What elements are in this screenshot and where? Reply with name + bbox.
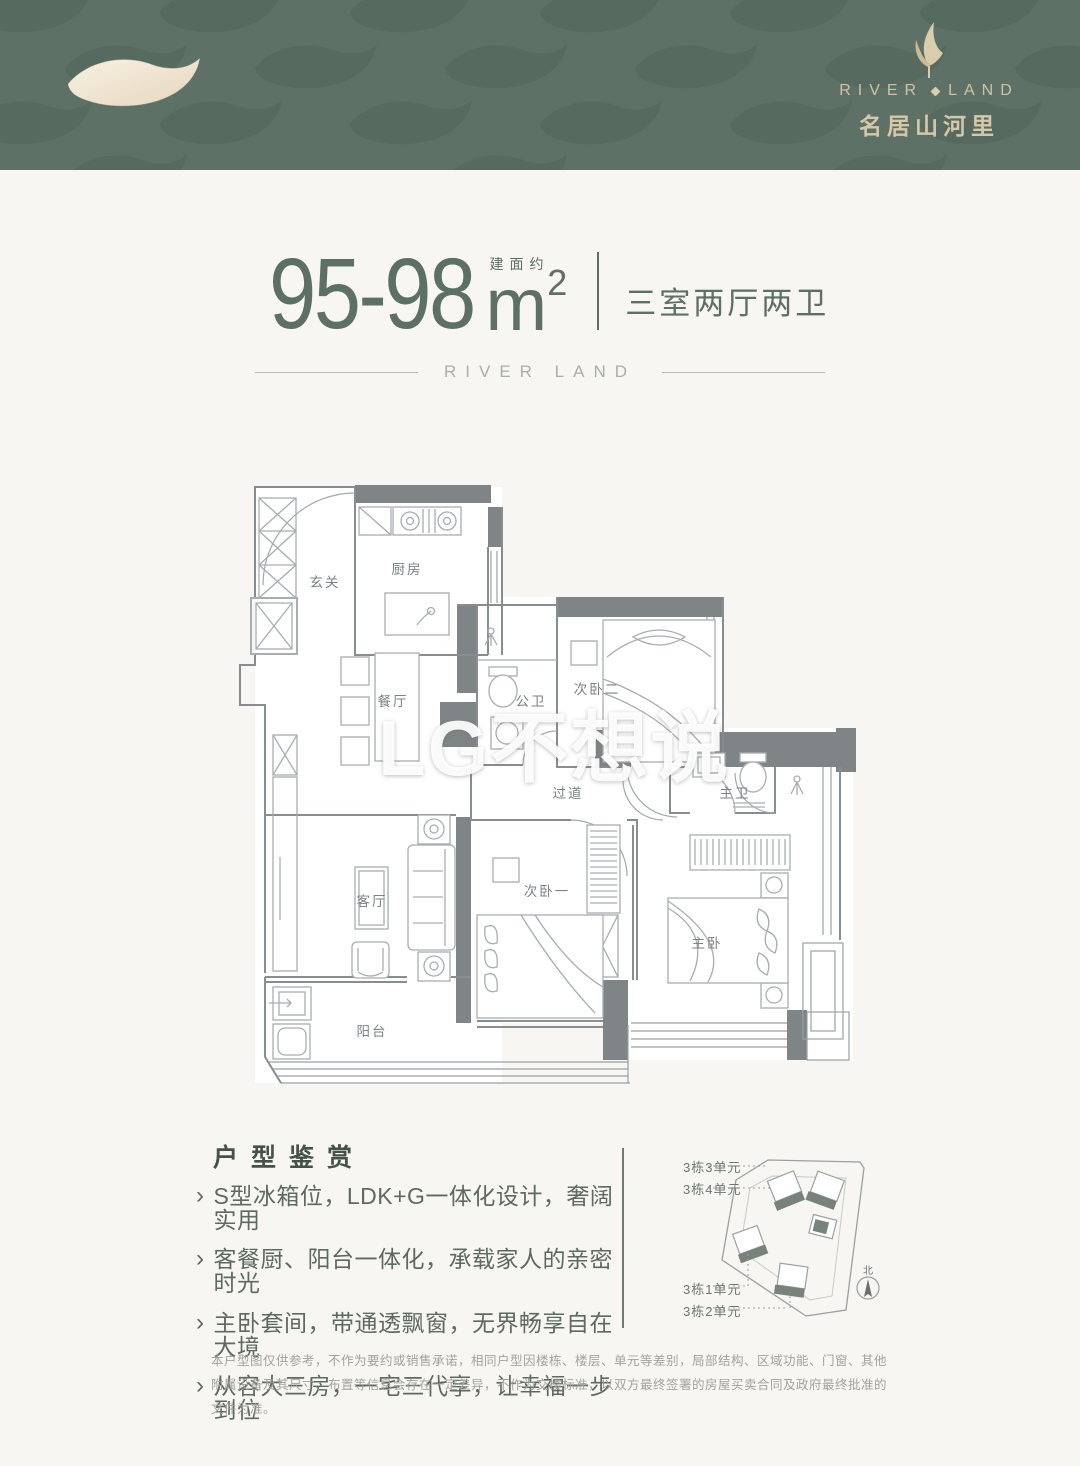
disclaimer-text: 本户型图仅供参考，不作为要约或销售承诺，相同户型因楼栋、楼层、单元等差别，局部结… xyxy=(211,1350,893,1421)
feature-item: › S型冰箱位，LDK+G一体化设计，奢阔实用 xyxy=(196,1184,636,1232)
room-label-bedroom1: 次卧一 xyxy=(524,884,571,899)
compass-north-label: 北 xyxy=(863,1265,873,1277)
siteplan-buildings xyxy=(731,1170,845,1297)
room-label-master: 主卧 xyxy=(692,936,723,951)
chevron-bullet-icon: › xyxy=(196,1311,205,1335)
brand-divider-row: RIVER LAND xyxy=(0,362,1080,382)
feature-text: S型冰箱位，LDK+G一体化设计，奢阔实用 xyxy=(214,1184,637,1232)
riverland-leaf-icon xyxy=(906,14,952,80)
brand-en-land: LAND xyxy=(948,82,1019,100)
area-unit-sup: 2 xyxy=(547,267,567,299)
chevron-bullet-icon: › xyxy=(196,1247,205,1271)
layout-type: 三室两厅两卫 xyxy=(625,278,829,323)
brand-cn: 名居山河里 xyxy=(859,107,999,141)
room-label-kitchen: 厨房 xyxy=(392,562,423,577)
room-label-balcony: 阳台 xyxy=(357,1024,388,1039)
features-divider-line xyxy=(622,1148,624,1328)
siteplan-label-unit1: 3栋1单元 xyxy=(683,1279,741,1298)
siteplan-label-unit3: 3栋3单元 xyxy=(683,1157,741,1176)
area-unit: m xyxy=(486,275,548,336)
feature-item: › 客餐厨、阳台一体化，承载家人的亲密时光 xyxy=(196,1247,636,1295)
brand-logo: RIVER LAND 名居山河里 xyxy=(814,14,1044,141)
brand-en-river: RIVER xyxy=(839,82,923,100)
watermark: LG不想说 xyxy=(378,686,730,798)
title-block: 95-98 建面约 m 2 三室两厅两卫 xyxy=(0,250,1080,338)
area-range: 95-98 xyxy=(269,250,474,338)
divider-line-left xyxy=(255,372,418,373)
divider-line-right xyxy=(662,372,825,373)
siteplan-label-unit4: 3栋4单元 xyxy=(683,1179,741,1198)
banner: RIVER LAND 名居山河里 xyxy=(0,0,1080,170)
room-label-living: 客厅 xyxy=(357,893,388,909)
brand-divider-text: RIVER LAND xyxy=(444,362,636,382)
chevron-bullet-icon: › xyxy=(196,1374,205,1398)
area-unit-block: 建面约 m 2 xyxy=(486,254,568,336)
room-label-entry: 玄关 xyxy=(310,574,341,590)
brand-diamond-icon xyxy=(931,86,941,96)
title-divider xyxy=(597,252,599,330)
compass-icon: 北 xyxy=(857,1265,879,1299)
siteplan-label-unit2: 3栋2单元 xyxy=(683,1301,741,1320)
chevron-bullet-icon: › xyxy=(196,1184,205,1208)
feature-text: 客餐厨、阳台一体化，承载家人的亲密时光 xyxy=(214,1247,637,1295)
features-heading: 户型鉴赏 xyxy=(213,1138,365,1174)
